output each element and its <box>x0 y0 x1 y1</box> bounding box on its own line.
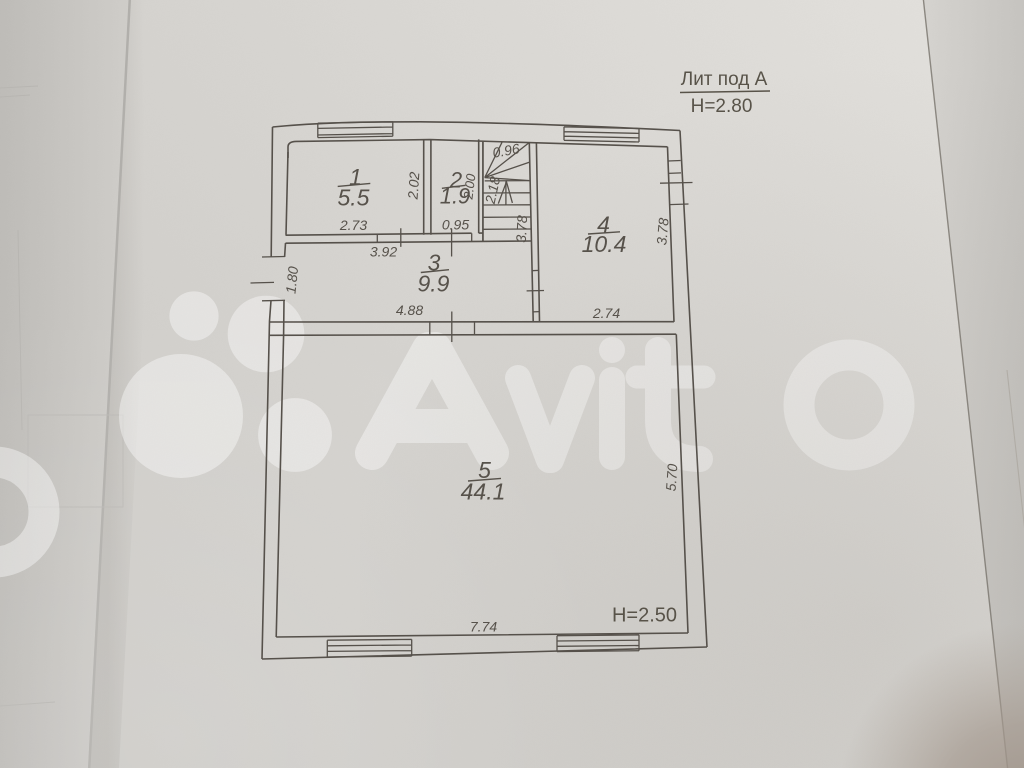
svg-text:4.88: 4.88 <box>396 302 423 318</box>
svg-text:9.9: 9.9 <box>418 271 450 297</box>
svg-text:2.02: 2.02 <box>404 171 422 201</box>
svg-text:3.92: 3.92 <box>370 244 397 260</box>
svg-text:Н=2.50: Н=2.50 <box>612 605 677 627</box>
svg-text:2.74: 2.74 <box>592 305 620 321</box>
svg-text:2.73: 2.73 <box>339 217 367 233</box>
svg-text:3.78: 3.78 <box>513 215 530 243</box>
svg-text:5.5: 5.5 <box>338 185 370 211</box>
svg-text:0.95: 0.95 <box>442 217 469 233</box>
svg-text:10.4: 10.4 <box>582 231 627 257</box>
svg-text:7.74: 7.74 <box>470 619 497 635</box>
svg-text:Н=2.80: Н=2.80 <box>691 96 753 117</box>
svg-text:1.80: 1.80 <box>282 265 301 294</box>
svg-text:44.1: 44.1 <box>461 479 506 505</box>
svg-text:3.78: 3.78 <box>653 217 671 246</box>
svg-text:5.70: 5.70 <box>663 463 681 492</box>
svg-text:Лит под А: Лит под А <box>681 69 768 90</box>
